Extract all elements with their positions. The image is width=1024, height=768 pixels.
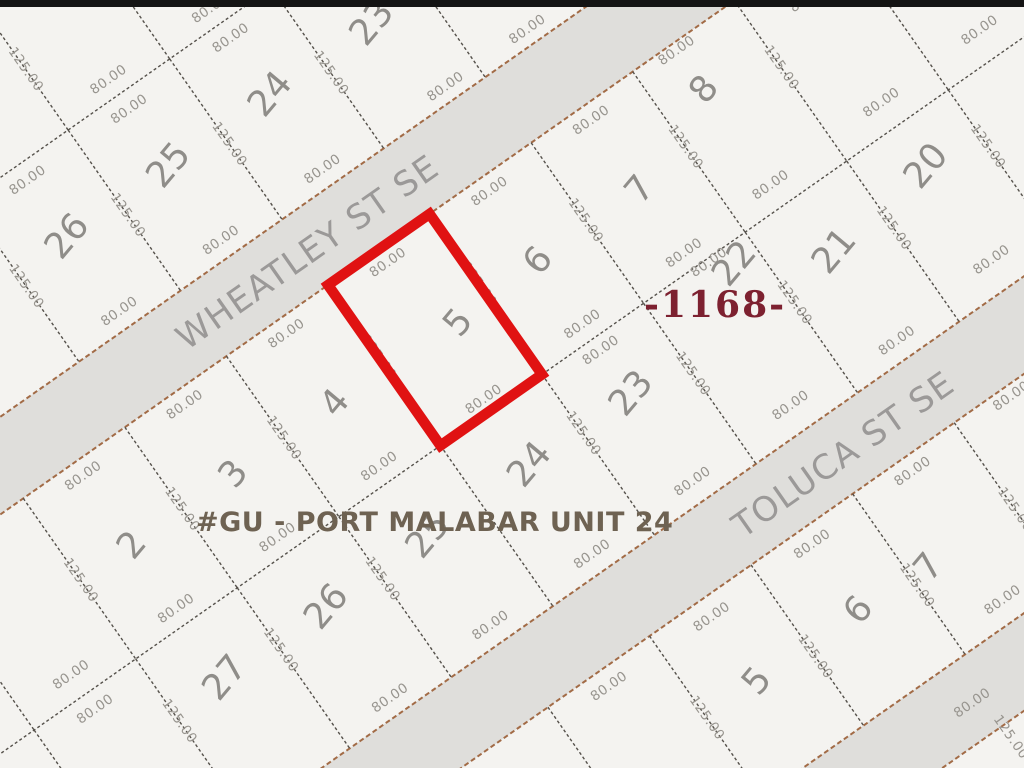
plat-map: 80.0080.0080.0080.0080.0080.0080.0080.00… — [0, 0, 1024, 768]
block-number-label: -1168- — [644, 284, 786, 326]
top-border-bar — [0, 0, 1024, 7]
plat-unit-label: #GU - PORT MALABAR UNIT 24 — [196, 507, 673, 538]
plat-map-canvas: 80.0080.0080.0080.0080.0080.0080.0080.00… — [0, 0, 1024, 768]
